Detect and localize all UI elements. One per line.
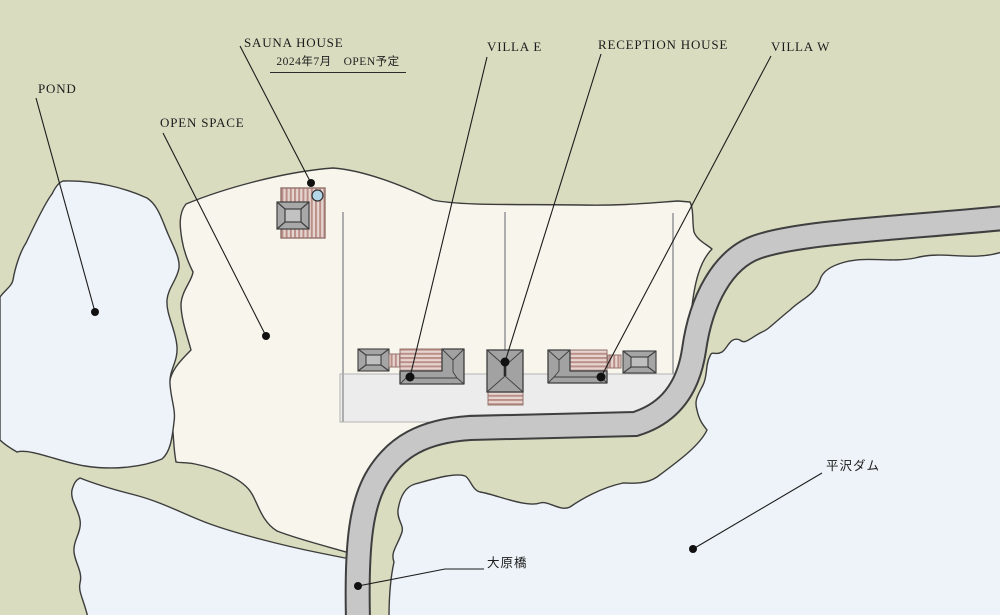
label-open-space: OPEN SPACE [160, 116, 244, 129]
label-ohara-bridge: 大原橋 [487, 557, 528, 570]
label-hirasawa-dam: 平沢ダム [826, 460, 880, 473]
label-villa-e: VILLA E [487, 40, 542, 53]
label-sauna-open-date: 2024年7月 OPEN予定 [270, 53, 406, 73]
site-plan-drawing [0, 0, 1000, 615]
label-sauna-house: SAUNA HOUSE [244, 36, 343, 49]
label-villa-w: VILLA W [771, 40, 830, 53]
bath-tub [312, 190, 323, 201]
label-reception-house: RECEPTION HOUSE [598, 38, 728, 51]
building-sauna-house [277, 188, 325, 238]
site-plan-map: POND SAUNA HOUSE 2024年7月 OPEN予定 OPEN SPA… [0, 0, 1000, 615]
label-pond: POND [38, 82, 77, 95]
